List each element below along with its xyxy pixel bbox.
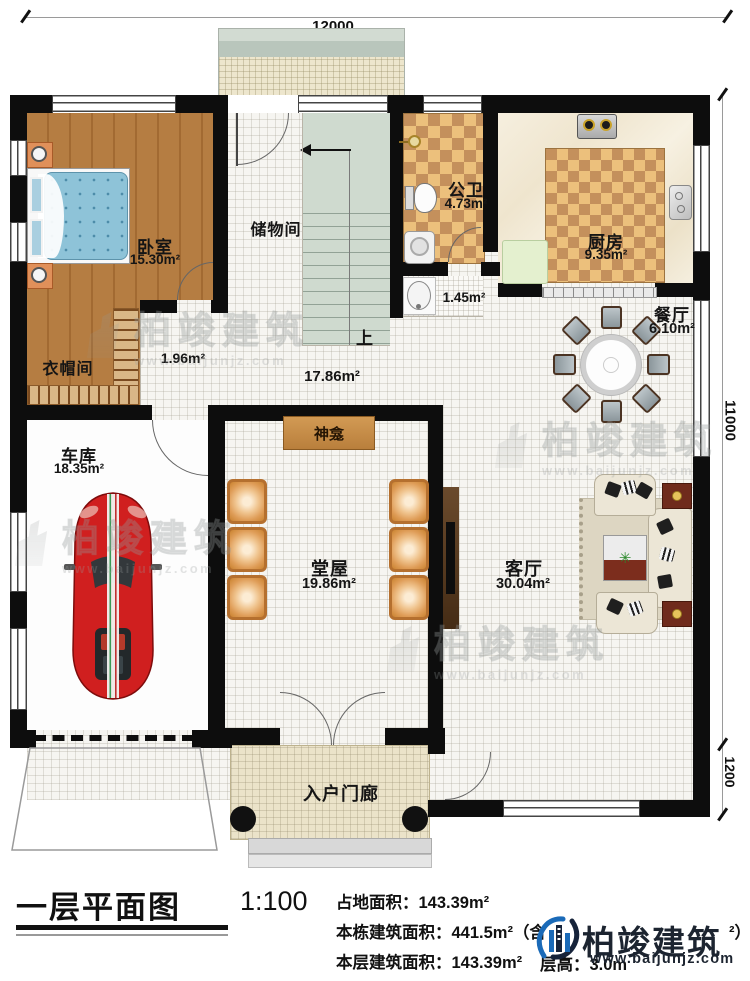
- wall-living-bottom-left: [428, 800, 503, 817]
- sofa-pillow: [657, 574, 673, 589]
- stairs-arrow-line: [309, 149, 351, 151]
- stove-burner: [583, 119, 595, 131]
- coffee-table: ✳: [603, 535, 647, 581]
- garage-door-dashed: [34, 735, 194, 741]
- wall-kitchen-bottom-b: [655, 283, 693, 297]
- wall-mainhall-right: [428, 405, 443, 728]
- corridor-area: 1.45m²: [440, 290, 488, 305]
- wall-bedroom-bottom-a: [140, 300, 177, 313]
- hallway-area: 17.86m²: [302, 368, 362, 385]
- bathroom-area: 4.73m²: [438, 196, 494, 211]
- wall-living-left-stub: [428, 728, 445, 754]
- sofa-loveseat-bottom: [596, 592, 658, 634]
- stairs-treads: [303, 213, 390, 345]
- storage-label: 储物间: [240, 216, 312, 240]
- wall-kitchen-left: [483, 95, 498, 252]
- mainhall-area: 19.86m²: [298, 576, 360, 592]
- building-area-label: 本栋建筑面积：441.5m²（含: [336, 919, 546, 943]
- window-garage-left-2: [10, 628, 27, 710]
- porch-column: [230, 806, 256, 832]
- wall-bathroom-left: [390, 95, 403, 318]
- window-living-bottom: [503, 800, 640, 817]
- door-gap-storage: [228, 95, 298, 113]
- dimension-line-top: [25, 17, 728, 18]
- dining-table-center: [603, 357, 619, 373]
- wall-mainhall-left: [208, 405, 225, 745]
- window-stairs-top: [298, 95, 388, 113]
- kitchen-rug: [545, 148, 665, 283]
- shrine-label: 神龛: [314, 423, 344, 444]
- bed-pillow: [30, 219, 43, 257]
- dining-chair: [553, 354, 576, 375]
- hall-armchair: [227, 479, 267, 524]
- cloakroom-area: 1.96m²: [156, 350, 210, 366]
- porch-step: [248, 838, 432, 854]
- building-area-tail: ²）: [729, 919, 750, 943]
- dining-chair: [601, 400, 622, 423]
- scale-label: 1:100: [240, 886, 308, 917]
- hall-armchair: [227, 527, 267, 572]
- stairs-rail: [349, 151, 350, 345]
- floor-area-label: 本层建筑面积：143.39m²: [336, 949, 522, 973]
- garage-area: 18.35m²: [48, 461, 110, 476]
- kitchen-sink-drain: [677, 205, 685, 213]
- terrace-tiles: [219, 57, 404, 96]
- vanity-faucet: [416, 304, 421, 309]
- hall-armchair: [389, 527, 429, 572]
- page-title: 一层平面图: [16, 882, 181, 927]
- wall-bedroom-storage: [213, 95, 228, 313]
- porch-label: 入户门廊: [293, 780, 389, 806]
- dimension-right-upper-value: 11000: [722, 397, 739, 445]
- side-table-lamp: [672, 609, 682, 619]
- window-garage-left-1: [10, 512, 27, 592]
- window-kitchen-right: [693, 145, 710, 252]
- door-storage-leaf: [236, 113, 238, 166]
- dining-chair: [601, 306, 622, 329]
- window-bedroom-top: [52, 95, 176, 113]
- porch-step: [248, 854, 432, 868]
- cloakroom-rack-bottom: [27, 385, 139, 405]
- plant-icon: ✳: [619, 549, 632, 567]
- side-table-lamp: [672, 491, 682, 501]
- title-underline-thin: [16, 934, 228, 936]
- dining-chair: [647, 354, 670, 375]
- wall-lamp: [408, 135, 421, 148]
- cloakroom-label: 衣帽间: [33, 355, 103, 379]
- terrace-band: [219, 29, 404, 41]
- window-bathroom-top: [423, 95, 482, 113]
- driveway: [5, 745, 227, 857]
- wall-garage-top: [10, 405, 152, 420]
- toilet-bowl: [414, 183, 437, 213]
- toilet-tank: [405, 186, 414, 210]
- cutting-board: [502, 240, 548, 284]
- wall-kitchen-bottom-a: [498, 283, 542, 297]
- floor-plan-canvas: 12000 11000 1200: [0, 0, 750, 981]
- terrace: [218, 28, 405, 97]
- hall-armchair: [227, 575, 267, 620]
- terrace-band: [219, 41, 404, 57]
- cloakroom-edge: [140, 313, 141, 405]
- wall-bathroom-bottom-a: [403, 262, 448, 276]
- washing-machine-drum: [410, 237, 429, 256]
- tv-screen: [446, 522, 455, 594]
- land-area-label: 占地面积：143.39m²: [336, 889, 489, 913]
- kitchen-area: 9.35m²: [578, 247, 634, 262]
- nightstand-lamp: [31, 146, 47, 162]
- stairs-up-label: 上: [354, 324, 376, 349]
- wall-bedroom-bottom-b: [211, 300, 228, 313]
- hall-armchair: [389, 575, 429, 620]
- wall-bathroom-bottom-b: [481, 262, 500, 276]
- title-underline-thick: [16, 925, 228, 930]
- stairs: [303, 113, 390, 345]
- cloakroom-rack-side: [113, 308, 139, 388]
- wall-living-bottom-right: [638, 800, 710, 817]
- shrine-table: 神龛: [283, 416, 375, 450]
- dining-area: 6.10m²: [644, 321, 700, 337]
- kitchen-sink: [669, 185, 692, 220]
- hall-armchair: [389, 479, 429, 524]
- dimension-line-right: [722, 95, 723, 817]
- window-bedroom-left-1: [10, 140, 27, 176]
- bed-pillow: [30, 177, 43, 213]
- porch-column: [402, 806, 428, 832]
- nightstand-lamp: [31, 267, 47, 283]
- stove-burner: [600, 119, 612, 131]
- corridor-bottom-edge: [403, 316, 483, 317]
- car: [63, 490, 163, 702]
- wall-porch-top-left: [225, 728, 280, 745]
- living-area: 30.04m²: [492, 576, 554, 592]
- stairs-landing: [303, 113, 390, 213]
- bedroom-area: 15.30m²: [111, 252, 199, 267]
- dimension-right-lower-value: 1200: [722, 753, 738, 791]
- logo-url: www.baijunjz.com: [590, 951, 734, 967]
- window-bedroom-left-2: [10, 222, 27, 262]
- kitchen-counter-band: [542, 287, 657, 298]
- stairs-bottom-edge: [302, 345, 390, 346]
- kitchen-sink-drain: [675, 192, 683, 200]
- logo-icon: [536, 914, 580, 962]
